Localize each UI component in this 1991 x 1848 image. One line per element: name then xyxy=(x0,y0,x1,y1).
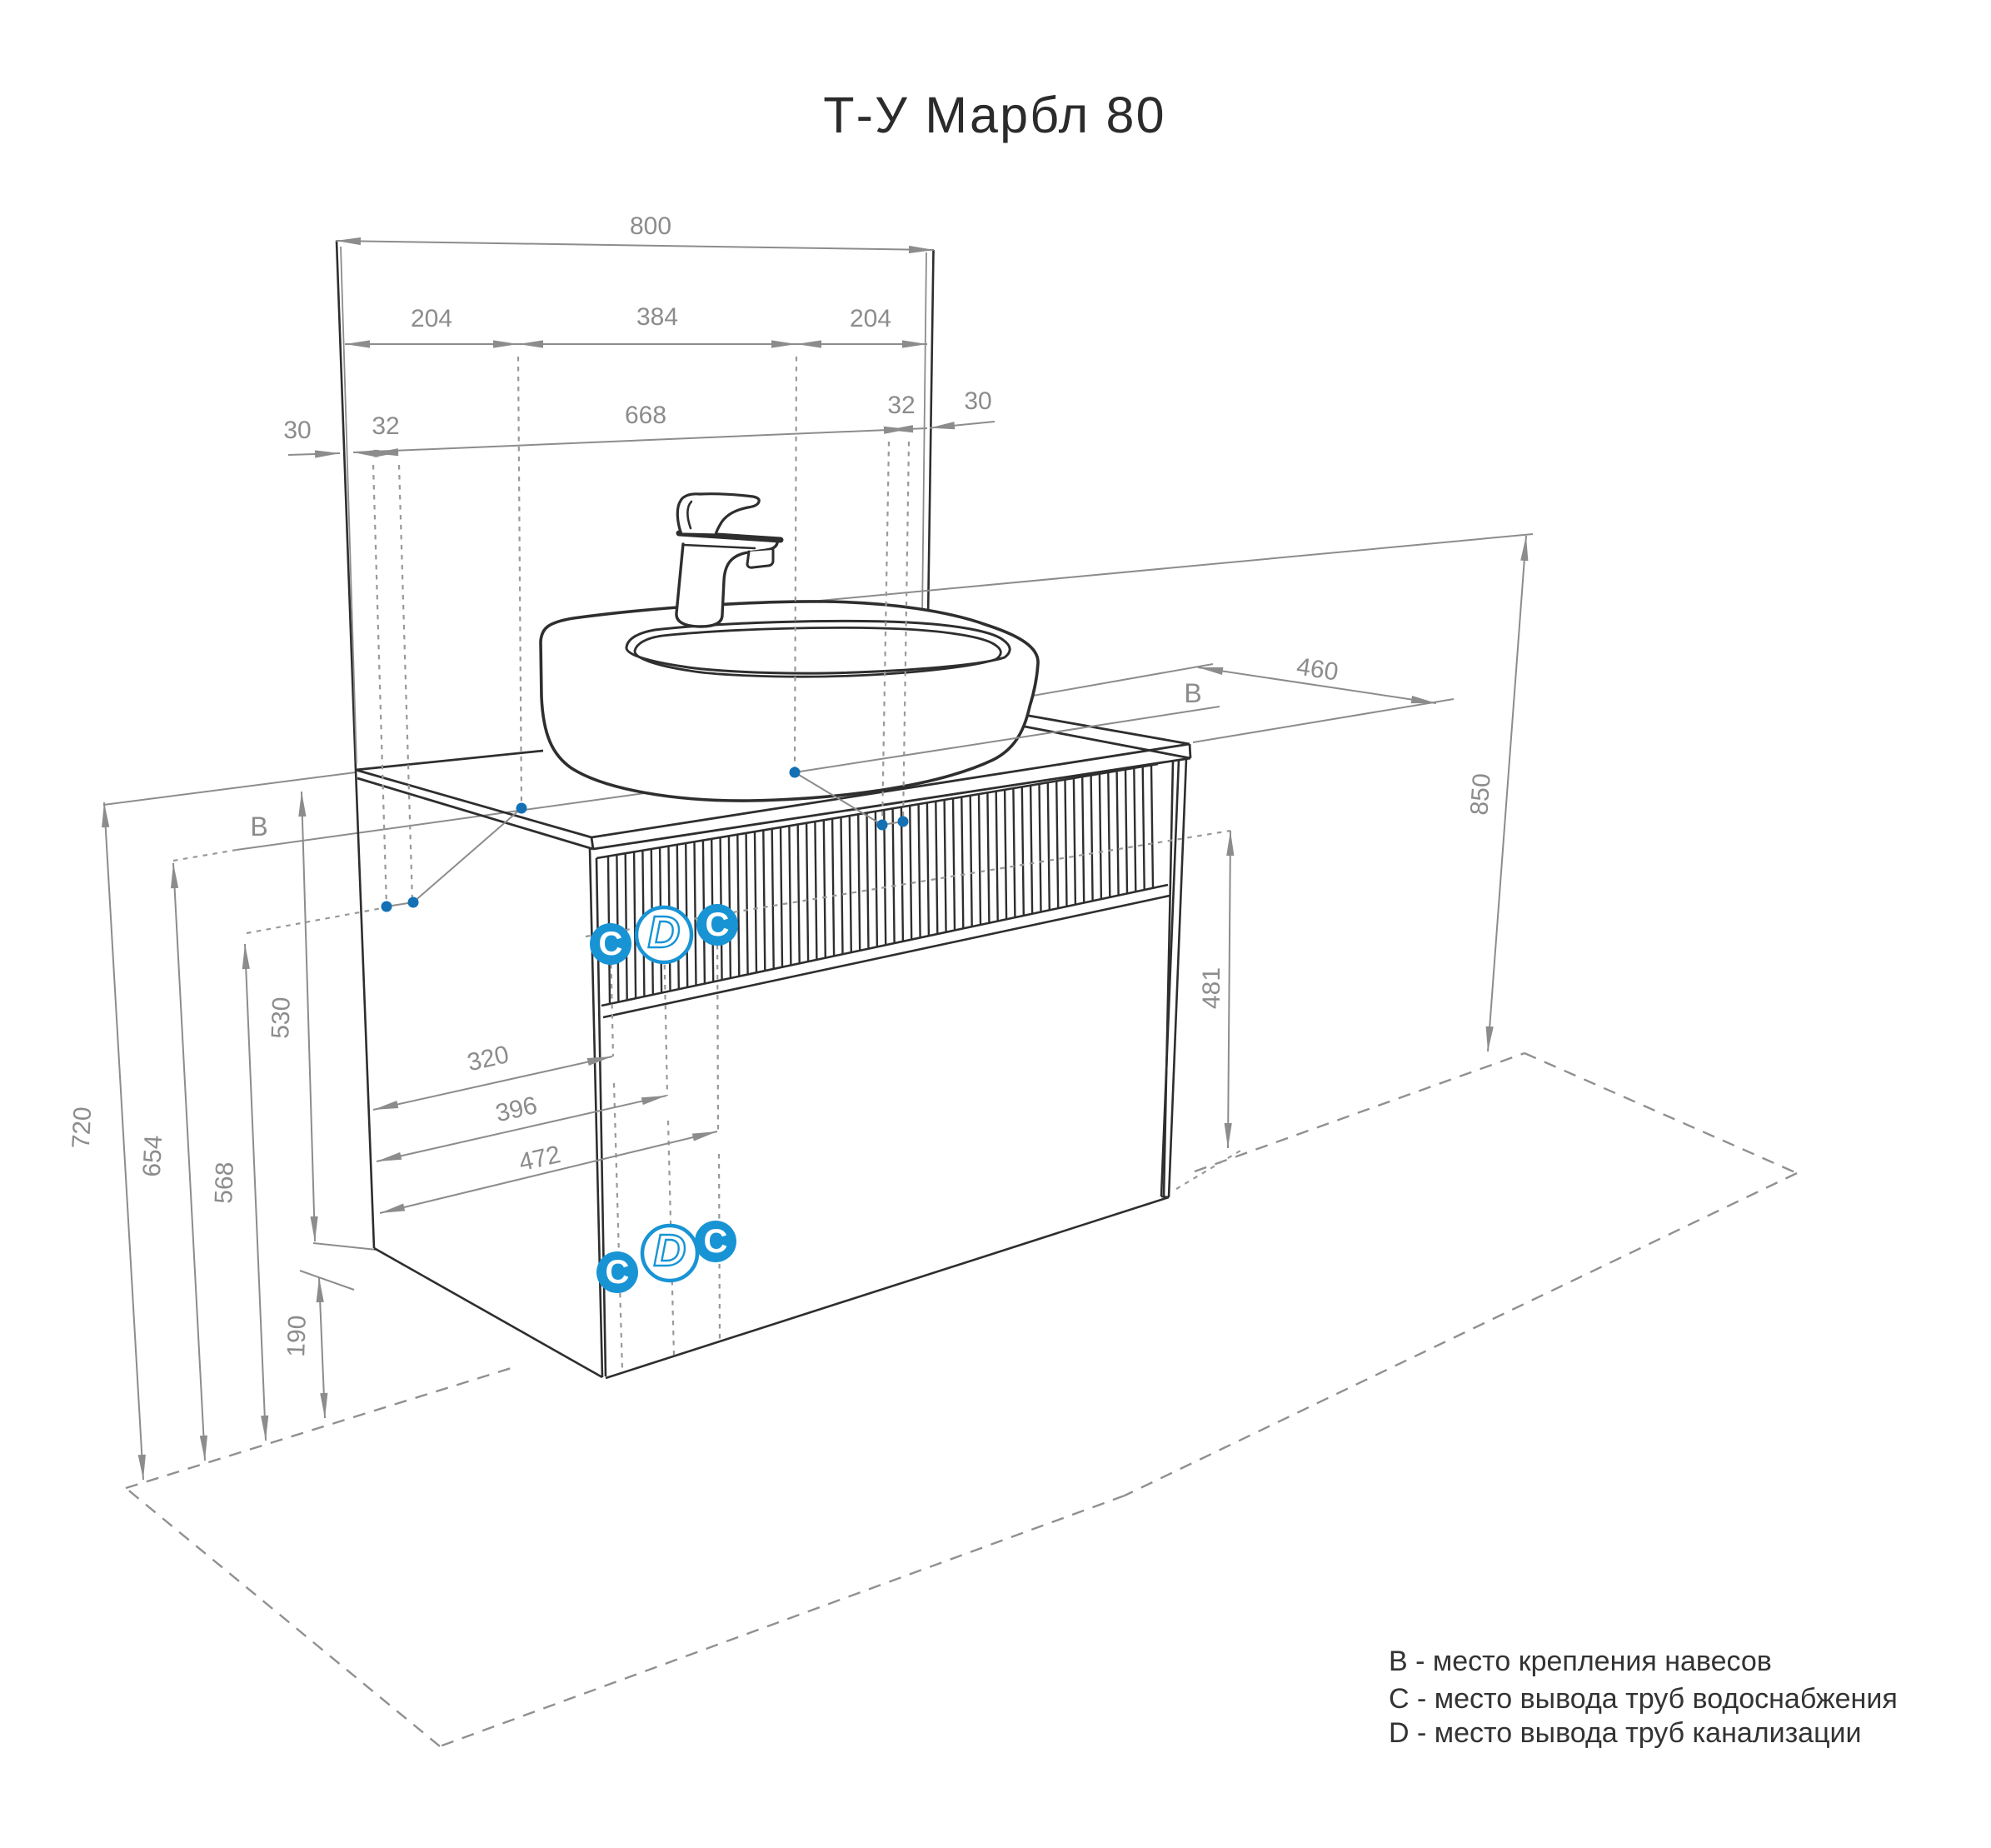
svg-text:32: 32 xyxy=(887,392,915,419)
svg-text:B: B xyxy=(1184,678,1201,708)
svg-text:B - место крепления навесов: B - место крепления навесов xyxy=(1389,1646,1772,1677)
svg-text:B: B xyxy=(250,812,267,842)
svg-text:190: 190 xyxy=(282,1315,312,1357)
svg-text:C - место вывода труб водоснаб: C - место вывода труб водоснабжения xyxy=(1389,1683,1898,1715)
svg-text:668: 668 xyxy=(625,402,666,429)
svg-text:720: 720 xyxy=(67,1106,97,1150)
svg-text:204: 204 xyxy=(850,305,891,332)
svg-text:800: 800 xyxy=(630,212,671,240)
svg-text:654: 654 xyxy=(138,1135,168,1178)
svg-text:568: 568 xyxy=(210,1161,239,1204)
svg-text:C: C xyxy=(599,926,623,962)
svg-text:C: C xyxy=(704,1223,728,1260)
svg-text:530: 530 xyxy=(267,996,296,1039)
svg-text:384: 384 xyxy=(636,303,678,331)
svg-text:850: 850 xyxy=(1465,772,1495,816)
svg-text:Т-У Марбл 80: Т-У Марбл 80 xyxy=(823,87,1166,143)
svg-text:D: D xyxy=(648,907,681,957)
svg-text:32: 32 xyxy=(372,412,399,440)
svg-text:D: D xyxy=(654,1226,686,1276)
svg-text:C: C xyxy=(606,1254,630,1291)
svg-text:30: 30 xyxy=(283,417,311,444)
svg-text:204: 204 xyxy=(411,305,452,332)
svg-text:C: C xyxy=(706,907,730,943)
svg-text:481: 481 xyxy=(1198,967,1225,1009)
svg-text:D - место вывода труб канализа: D - место вывода труб канализации xyxy=(1389,1717,1862,1749)
svg-text:30: 30 xyxy=(964,387,991,415)
